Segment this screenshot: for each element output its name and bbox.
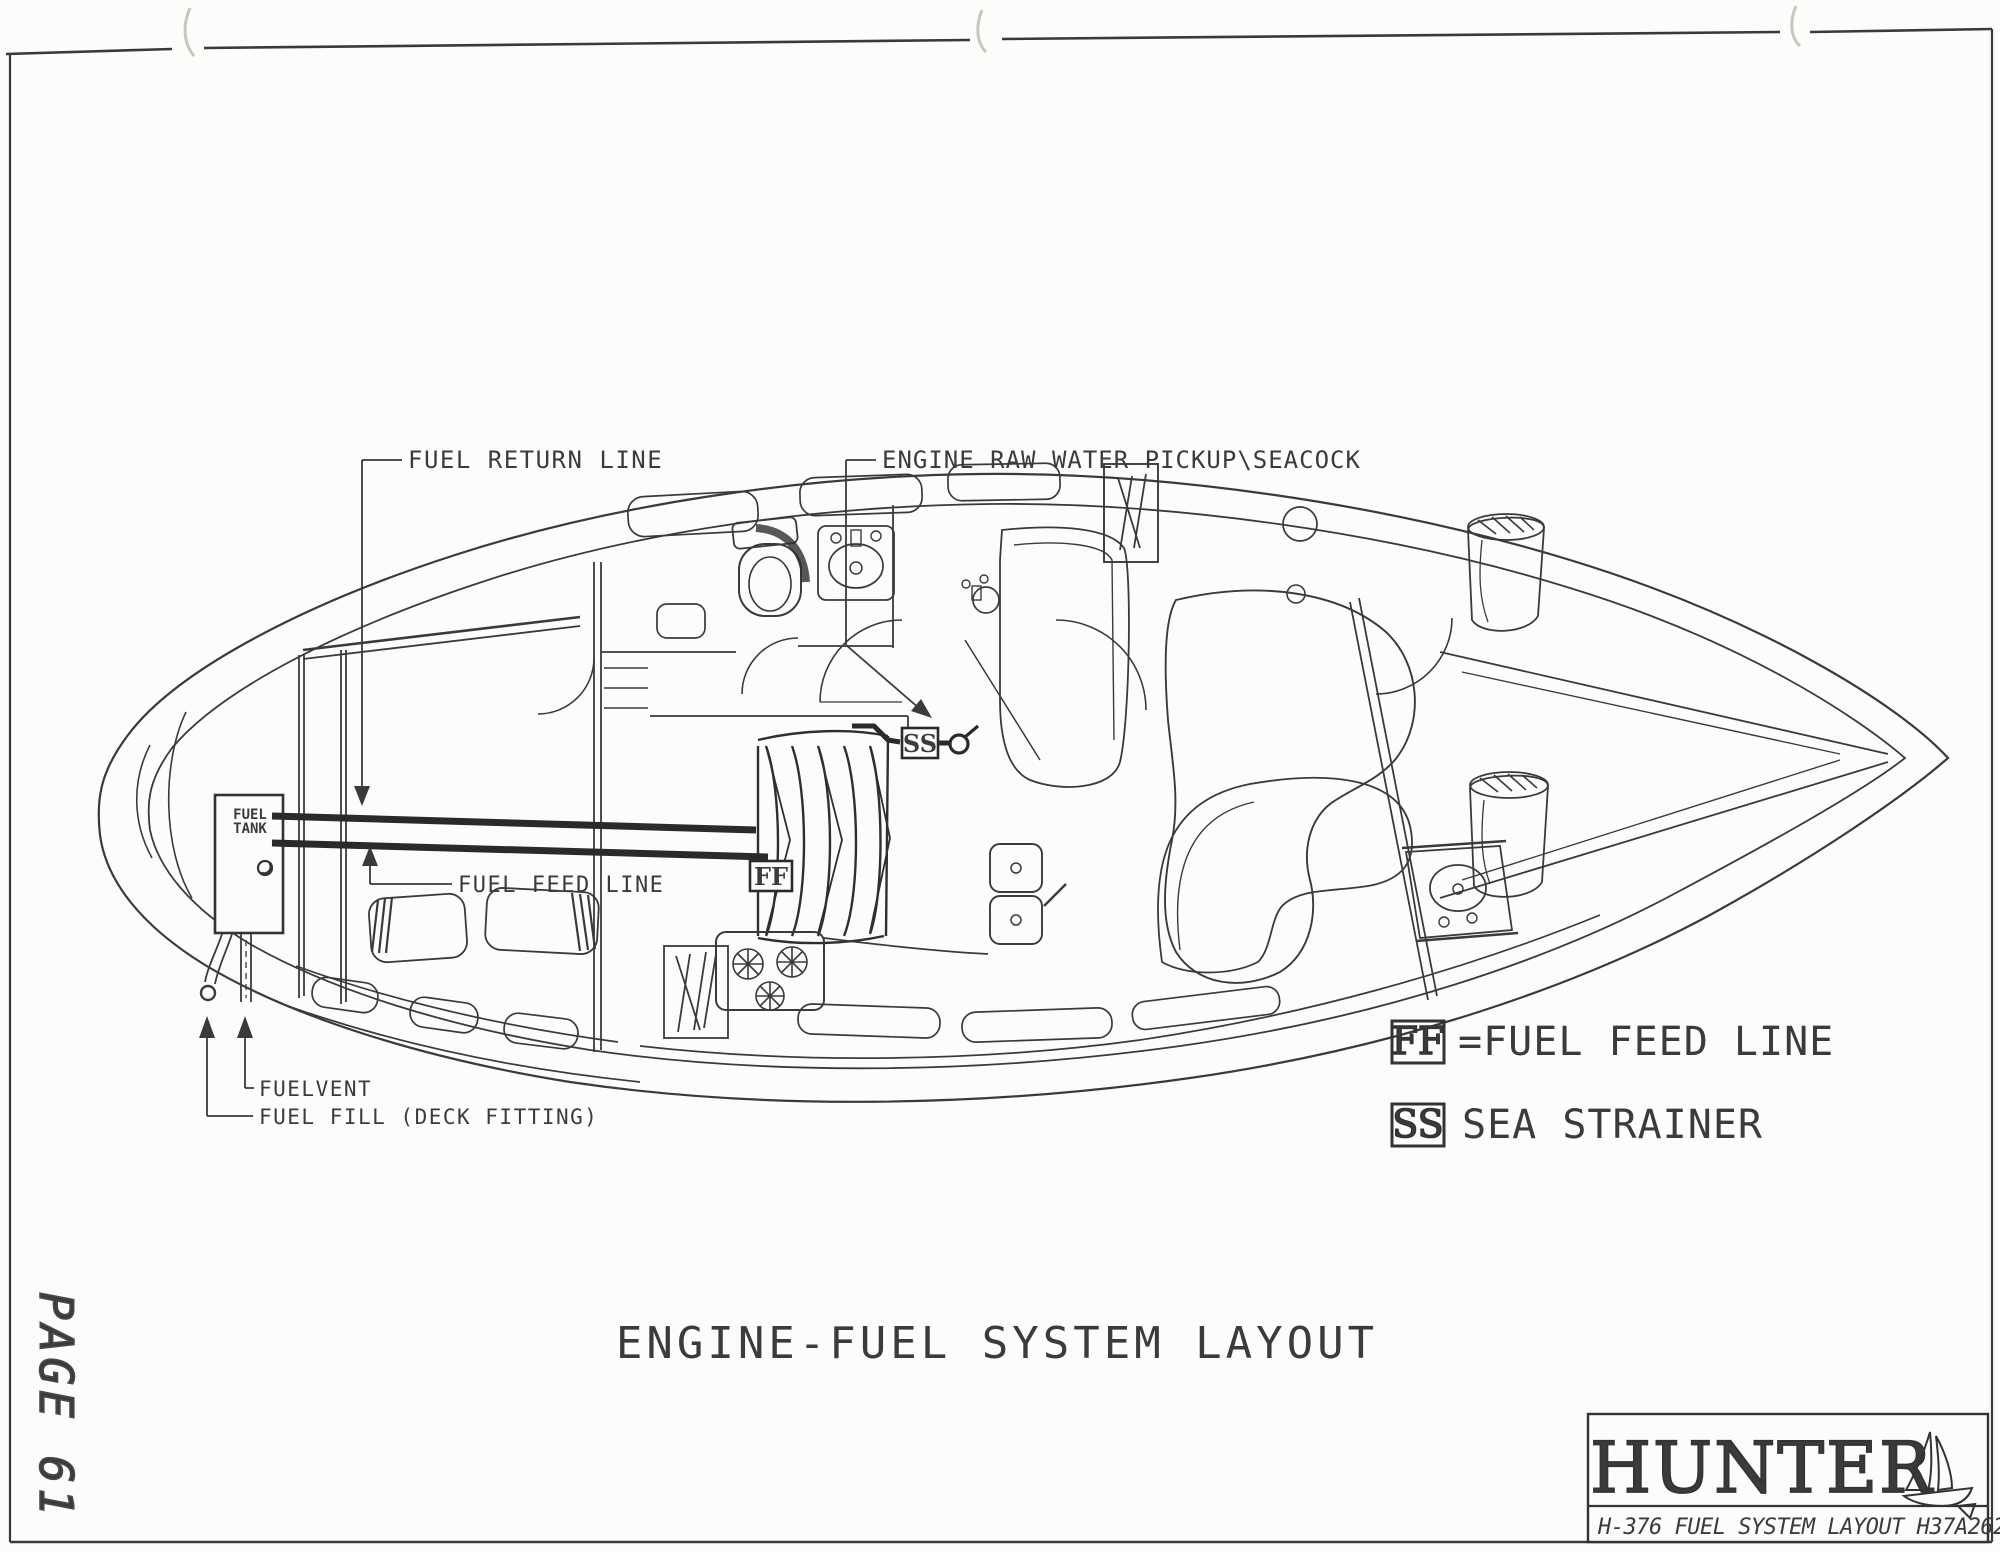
fill-deck-fitting — [201, 986, 215, 1000]
title-block-subtitle: H-376 FUEL SYSTEM LAYOUT H37A2628 — [1597, 1515, 2000, 1540]
settee-upper — [1000, 527, 1129, 787]
drawing-title: ENGINE-FUEL SYSTEM LAYOUT — [616, 1318, 1378, 1369]
counter-edge — [824, 938, 988, 954]
hull-inner — [149, 504, 1905, 1068]
vberth-cushion — [1165, 590, 1415, 982]
fuel-tank-label-2: TANK — [233, 821, 267, 837]
raw-water-label: ENGINE RAW WATER PICKUP\SEACOCK — [882, 446, 1361, 474]
toilet-seat — [739, 544, 801, 616]
seacock-handle — [965, 726, 978, 737]
fuel-fill-label: FUEL FILL (DECK FITTING) — [259, 1105, 598, 1129]
legend-ff-symbol: FF — [1392, 1019, 1445, 1063]
fuel-feed-label: FUEL FEED LINE — [458, 873, 664, 898]
hanging-locker-marks — [1118, 474, 1146, 550]
door-swing-arcs — [538, 618, 1452, 714]
fuel-return-line — [272, 816, 756, 830]
locker-band-top — [296, 966, 618, 1042]
page-number: PAGE 61 — [29, 1292, 83, 1521]
raw-water-arrowhead — [911, 699, 932, 718]
locker-door-3 — [502, 1012, 579, 1051]
legend-item-ss: SS SEA STRAINER — [1392, 1102, 1763, 1148]
rolled-cushion-1 — [1468, 514, 1544, 631]
galley — [664, 844, 1066, 1038]
legend-ss-label: SEA STRAINER — [1462, 1102, 1763, 1148]
stove-burners — [733, 947, 807, 1010]
fuel-return-label: FUEL RETURN LINE — [408, 446, 663, 474]
head-sink-basin — [829, 544, 883, 588]
galley-hatch-marks — [676, 952, 716, 1032]
dinette-seat — [1158, 778, 1412, 973]
head-compartment — [732, 517, 894, 616]
galley-hatch — [664, 946, 728, 1038]
legend-ss-symbol: SS — [1392, 1102, 1443, 1146]
fuel-feed-marker: FF — [754, 862, 788, 891]
forward-cabin — [1104, 464, 1548, 983]
seacock — [950, 735, 968, 753]
legend-item-ff: FF =FUEL FEED LINE — [1392, 1019, 1835, 1065]
bottom-deck-lockers — [640, 915, 1600, 1058]
salon — [965, 527, 1412, 972]
sea-strainer-marker: SS — [903, 729, 937, 758]
callout-fuel-vent: FUELVENT — [237, 1016, 372, 1101]
locker-band-bottom — [288, 1006, 640, 1082]
callout-fuel-fill: FUEL FILL (DECK FITTING) — [199, 1016, 598, 1129]
fuel-fill-arrowhead — [199, 1016, 215, 1038]
title-block: HUNTER H-376 FUEL SYSTEM LAYOUT H37A2628 — [1588, 1414, 2000, 1542]
berth-pillow-1 — [368, 893, 468, 964]
galley-sink-1 — [990, 844, 1042, 892]
deck-hatch-circle — [1283, 507, 1317, 541]
scanned-drawing-page: PAGE 61 — [0, 0, 2000, 1552]
hull-outer — [99, 474, 1948, 1102]
deck-hatches — [627, 463, 1317, 638]
engine — [758, 731, 890, 943]
galley-sink-2 — [990, 896, 1042, 944]
raw-water-supply-line — [965, 640, 1040, 760]
fuel-system-diagram: PAGE 61 — [0, 0, 2000, 1552]
fuel-vent-label: FUELVENT — [259, 1077, 372, 1101]
locker-door-1 — [310, 976, 380, 1015]
scan-tear-marks — [185, 6, 1800, 56]
legend: FF =FUEL FEED LINE SS SEA STRAINER — [1392, 1019, 1835, 1148]
fuel-return-arrowhead — [354, 786, 370, 806]
galley-faucet — [1044, 884, 1066, 906]
toilet-lid-shadow — [756, 528, 806, 582]
rolled-cushion-2 — [1470, 772, 1548, 897]
legend-ff-label: =FUEL FEED LINE — [1458, 1019, 1834, 1065]
fuel-fill-hose — [201, 934, 232, 1000]
toilet-bowl — [749, 557, 791, 611]
brand-logo-text: HUNTER — [1590, 1427, 1934, 1509]
hull-outline — [99, 474, 1948, 1102]
fuel-vent-arrowhead — [237, 1016, 253, 1038]
